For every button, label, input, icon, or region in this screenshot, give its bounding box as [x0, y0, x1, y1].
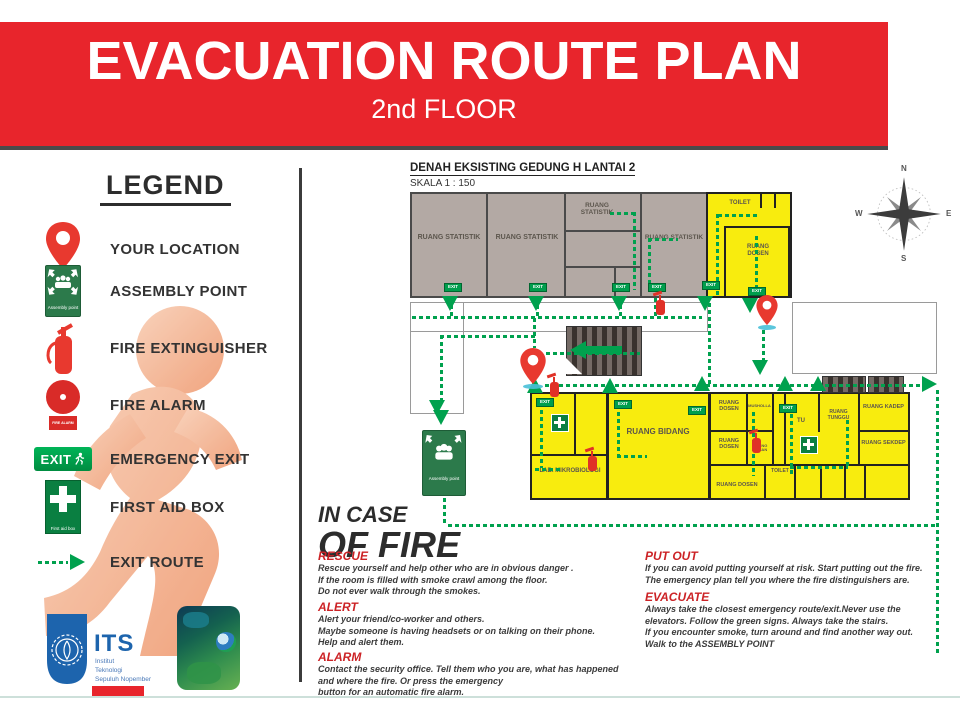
exit-route-line	[755, 236, 758, 290]
route-arrow-up	[602, 378, 618, 393]
legend-label: FIRE ALARM	[110, 397, 206, 414]
fire-extinguisher-marker	[752, 438, 761, 453]
fire-extinguisher-marker	[550, 382, 559, 397]
section-title-alert: ALERT	[318, 600, 358, 614]
its-acronym: ITS	[94, 630, 134, 658]
legend-item-assembly-point: Assembly point ASSEMBLY POINT	[32, 263, 292, 319]
compass-east: E	[946, 209, 951, 218]
fire-extinguisher-marker	[588, 456, 597, 471]
room-label: RUANG BIDANG	[622, 428, 694, 437]
evacuation-poster: EVACUATION ROUTE PLAN 2nd FLOOR LEGEND Y…	[0, 0, 960, 720]
section-title-rescue: RESCUE	[318, 549, 368, 563]
campus-collage-logo	[177, 606, 240, 690]
exit-route-line	[540, 410, 543, 468]
route-arrow-up	[694, 376, 710, 391]
assembly-point-icon: Assembly point	[32, 265, 94, 317]
route-arrow-down	[611, 296, 627, 311]
interior-wall	[566, 266, 640, 268]
interior-wall	[858, 430, 908, 432]
legend-label: EMERGENCY EXIT	[110, 451, 250, 468]
exit-sign: EXIT	[702, 281, 720, 290]
exit-sign: EXIT	[536, 398, 554, 407]
room-label: RUANG DOSEN	[736, 244, 780, 257]
exit-sign: EXIT	[444, 283, 462, 292]
interior-wall	[774, 192, 776, 208]
its-name-line: Sepuluh Nopember	[95, 676, 151, 685]
interior-wall	[574, 392, 576, 454]
route-arrow-down	[752, 360, 768, 375]
exit-route-line	[718, 214, 758, 217]
exit-route-line	[535, 468, 563, 471]
interior-wall	[820, 464, 822, 498]
exit-sign: EXIT	[688, 406, 706, 415]
exit-sign: EXIT	[614, 400, 632, 409]
interior-wall	[614, 266, 616, 296]
legend-item-first-aid: First aid box FIRST AID BOX	[32, 477, 292, 537]
room-label: RUANG SEKDEP	[861, 440, 906, 446]
exit-route-line	[440, 335, 443, 403]
first-aid-icon: First aid box	[32, 480, 94, 534]
legend-title: LEGEND	[100, 170, 231, 206]
room-label: TOILET	[718, 200, 762, 207]
room-label: RUANG STATISTIK	[414, 234, 484, 242]
assembly-sign-text: Assembly point	[423, 476, 465, 482]
section-body-alert: Alert your friend/co-worker and others. …	[318, 614, 648, 649]
exit-route-line	[790, 466, 848, 469]
legend-label: EXIT ROUTE	[110, 554, 204, 571]
room-label: RUANG STATISTIK	[492, 234, 562, 242]
legend-label: FIRE EXTINGUISHER	[110, 340, 268, 357]
pin-shadow	[758, 325, 776, 330]
pin-shadow	[523, 384, 543, 389]
stairs-arrow-left	[570, 341, 586, 359]
emergency-exit-icon: EXIT	[32, 447, 94, 471]
fire-extinguisher-icon	[32, 319, 94, 377]
first-aid-sign-text: First aid box	[46, 526, 80, 531]
exit-route-line	[648, 238, 678, 241]
stairs-arrow-stem	[586, 346, 622, 354]
interior-wall	[566, 230, 640, 232]
legend-item-exit-route: EXIT ROUTE	[32, 549, 292, 575]
section-title-alarm: ALARM	[318, 650, 361, 664]
interior-wall	[784, 392, 786, 465]
exit-sign-text: EXIT	[41, 452, 72, 467]
route-arrow-down	[697, 296, 713, 311]
section-body-rescue: Rescue yourself and help other who are i…	[318, 563, 648, 598]
your-location-pin	[756, 295, 778, 325]
section-title-evacuate: EVACUATE	[645, 590, 709, 604]
its-logo-red-bar	[92, 686, 144, 696]
exit-route-line	[617, 455, 647, 458]
section-body-alarm: Contact the security office. Tell them w…	[318, 664, 648, 699]
interior-wall	[864, 464, 866, 498]
exit-route-line	[617, 412, 620, 455]
legend-item-fire-alarm: FIRE ALARM FIRE ALARM	[32, 376, 292, 434]
interior-wall	[710, 430, 774, 432]
fire-extinguisher-marker	[656, 300, 665, 315]
room-label: RUANG TUNGGU	[820, 410, 857, 421]
room-label: MUSHOLLA	[747, 404, 772, 408]
exit-route-line	[762, 330, 765, 362]
interior-wall	[858, 392, 860, 465]
header-banner: EVACUATION ROUTE PLAN 2nd FLOOR	[0, 22, 888, 150]
fire-alarm-icon: FIRE ALARM	[32, 380, 94, 430]
interior-wall	[844, 464, 846, 498]
plan-scale: SKALA 1 : 150	[410, 178, 475, 189]
room-ruang-statistik-2	[486, 192, 566, 298]
its-name-line: Institut	[95, 658, 151, 667]
compass-rose-icon	[864, 174, 944, 254]
legend-item-emergency-exit: EXIT EMERGENCY EXIT	[32, 444, 292, 474]
fire-alarm-sign-text: FIRE ALARM	[49, 416, 77, 430]
exit-route-line	[846, 420, 849, 466]
exit-route-line	[440, 335, 536, 338]
assembly-point-sign: Assembly point	[422, 430, 466, 496]
exit-route-line	[412, 316, 702, 319]
its-name-line: Teknologi	[95, 667, 151, 676]
route-arrow-up	[777, 376, 793, 391]
route-arrow-down	[528, 296, 544, 311]
assembly-sign-text: Assembly point	[46, 305, 80, 310]
compass-west: W	[855, 209, 863, 218]
room-label: RUANG DOSEN	[712, 438, 746, 450]
room-label: RUANG KADEP	[861, 404, 906, 410]
section-body-put-out: If you can avoid putting yourself at ris…	[645, 563, 955, 586]
first-aid-marker	[551, 414, 569, 432]
exit-route-line	[936, 390, 939, 655]
page-subtitle: 2nd FLOOR	[0, 94, 888, 125]
exit-sign: EXIT	[612, 283, 630, 292]
compass-north: N	[901, 164, 907, 173]
column-divider	[299, 168, 302, 682]
legend-item-fire-extinguisher: FIRE EXTINGUISHER	[32, 318, 292, 378]
room-label: RUANG DOSEN	[712, 400, 746, 412]
page-title: EVACUATION ROUTE PLAN	[0, 30, 888, 92]
exit-route-line	[443, 498, 446, 524]
exit-sign: EXIT	[779, 404, 797, 413]
exit-route-line	[610, 212, 633, 215]
corridor-outline	[792, 302, 937, 374]
legend-label: FIRST AID BOX	[110, 499, 225, 516]
exit-route-icon	[32, 553, 94, 571]
route-arrow-up	[810, 376, 826, 391]
running-man-glyph	[74, 452, 85, 466]
room-label: RUANG DOSEN	[710, 482, 764, 488]
plan-title: DENAH EKSISTING GEDUNG H LANTAI 2	[410, 162, 635, 176]
route-arrow-down	[442, 296, 458, 311]
route-arrow-down	[433, 410, 449, 425]
exit-sign: EXIT	[648, 283, 666, 292]
route-arrow-east-exit	[922, 376, 937, 392]
interior-wall	[606, 392, 609, 500]
compass-south: S	[901, 254, 906, 263]
first-aid-marker	[800, 436, 818, 454]
interior-wall	[794, 464, 796, 498]
legend-label: ASSEMBLY POINT	[110, 283, 247, 300]
stairs-fold-corner	[566, 358, 582, 374]
your-location-pin	[520, 348, 546, 384]
exit-sign: EXIT	[529, 283, 547, 292]
interior-wall	[772, 392, 774, 465]
section-body-evacuate: Always take the closest emergency route/…	[645, 604, 955, 651]
exit-route-line	[533, 318, 536, 348]
legend-label: YOUR LOCATION	[110, 241, 240, 258]
exit-route-line	[448, 524, 938, 527]
exit-route-line	[633, 212, 636, 290]
section-title-put-out: PUT OUT	[645, 549, 698, 563]
its-shield-logo	[45, 612, 89, 686]
